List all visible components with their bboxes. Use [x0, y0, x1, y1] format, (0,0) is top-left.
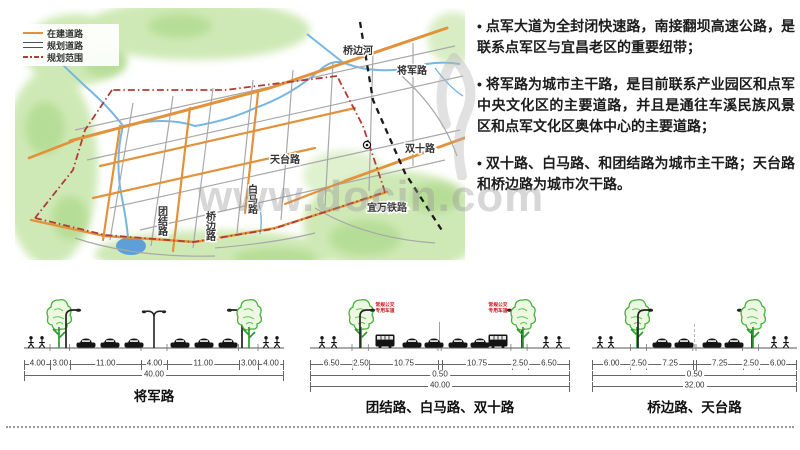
- car-icon: [171, 339, 190, 348]
- cross-section-scene: [24, 296, 284, 358]
- dimension-cell: 6.50: [528, 360, 570, 370]
- map-legend: 在建道路 规划道路 规划范围: [19, 24, 119, 66]
- median-row: 0.50: [592, 371, 797, 381]
- section-title: 桥边路、天台路: [592, 396, 797, 416]
- map-label-jiangjun-road: 将军路: [397, 64, 428, 77]
- bullet-3: • 双十路、白马路、和团结路为城市主干路；天台路和桥边路为城市次干路。: [477, 153, 795, 195]
- median-width: 0.50: [430, 371, 450, 380]
- legend-label: 规划范围: [47, 51, 83, 64]
- cross-section-tuanjie-baima-shuangshi: 常规公交 专用车道 常规公交 专用车道 6.502.5010.7510.752.…: [310, 296, 570, 416]
- pedestrian-icon: [608, 336, 614, 348]
- car-icon: [703, 339, 722, 348]
- map-label-qiaobian-river: 桥边河: [343, 44, 373, 57]
- dimension-cell: 7.25: [646, 360, 692, 370]
- total-width: 32.00: [682, 382, 706, 391]
- dimension-cell: 4.00: [141, 360, 167, 370]
- median-width: 0.50: [685, 371, 705, 380]
- bullet-2: • 将军路为城市主干路，是目前联系产业园区和点军中央文化区的主要道路，并且是通往…: [477, 74, 795, 137]
- pedestrian-icon: [771, 336, 777, 348]
- tree-icon: [741, 300, 765, 348]
- median-row: 0.50: [310, 371, 570, 381]
- car-icon: [425, 339, 444, 348]
- map-label-tiantai-road: 天台路: [270, 153, 301, 166]
- dimension-cell: 11.00: [167, 360, 239, 370]
- section-title: 团结路、白马路、双十路: [310, 396, 570, 416]
- bullet-text-block: • 点军大道为全封闭快速路，南接翻坝高速公路，是联系点军区与宜昌老区的重要纽带；…: [477, 16, 795, 211]
- dimension-cell: 10.75: [369, 360, 439, 370]
- section-title: 将军路: [24, 385, 284, 405]
- total-row: 32.00: [592, 382, 797, 392]
- map-label-baima-road: 白马路: [246, 183, 258, 215]
- pedestrian-icon: [556, 336, 562, 348]
- dimension-cell: 6.00: [759, 360, 797, 370]
- bullet-1: • 点军大道为全封闭快速路，南接翻坝高速公路，是联系点军区与宜昌老区的重要纽带；: [477, 16, 795, 58]
- dimension-cell: 3.00: [50, 360, 70, 370]
- tree-icon: [349, 300, 373, 348]
- dimension-cell: 11.00: [70, 360, 142, 370]
- dimension-cell: 2.50: [630, 360, 646, 370]
- bus-lane-label: 常规公交: [488, 301, 507, 308]
- dimension-cell: 6.00: [592, 360, 630, 370]
- dimension-cell: 2.50: [743, 360, 759, 370]
- pedestrian-icon: [543, 336, 549, 348]
- pedestrian-icon: [263, 336, 269, 348]
- bus-lane-label: 专用车道: [375, 307, 394, 314]
- cross-section-qiaobian-tiantai: 6.002.507.257.252.506.00 0.50 32.00 桥边路、…: [592, 296, 797, 416]
- total-row: 40.00: [310, 382, 570, 392]
- boundary-swatch: [23, 56, 43, 59]
- cross-section-jiangjun: 4.003.0011.004.0011.003.004.00 40.00 将军路: [24, 296, 284, 405]
- car-icon: [195, 339, 214, 348]
- dimension-cell: 6.50: [310, 360, 352, 370]
- tree-icon: [47, 300, 71, 348]
- car-icon: [125, 339, 144, 348]
- pedestrian-icon: [597, 336, 603, 348]
- dimension-cell: 2.50: [352, 360, 368, 370]
- bus-lane-label: 常规公交: [375, 301, 394, 308]
- pedestrian-icon: [783, 336, 789, 348]
- bus-lane-label: 专用车道: [488, 307, 507, 314]
- dimension-cell: 4.00: [24, 360, 50, 370]
- dimension-cell: 2.50: [512, 360, 528, 370]
- pedestrian-icon: [39, 336, 45, 348]
- dimension-row: 6.502.5010.7510.752.506.50: [310, 360, 570, 370]
- slide: 桥边河 将军路 双十路 天台路 宜万铁路 白马路 桥边路 团结路 在建道路 规划…: [0, 0, 800, 450]
- dimension-row: 4.003.0011.004.0011.003.004.00: [24, 360, 284, 370]
- legend-item-construction: 在建道路: [23, 27, 115, 39]
- car-icon: [449, 339, 468, 348]
- construction-road-swatch: [23, 32, 43, 35]
- car-icon: [77, 339, 96, 348]
- legend-item-boundary: 规划范围: [23, 51, 115, 63]
- total-width: 40.00: [142, 371, 166, 380]
- map-label-shuangshi-road: 双十路: [405, 142, 436, 155]
- total-width: 40.00: [428, 382, 452, 391]
- pedestrian-icon: [28, 336, 34, 348]
- footer-dotted-divider: [6, 426, 794, 428]
- car-icon: [725, 339, 744, 348]
- planned-road-swatch: [23, 42, 43, 48]
- car-icon: [101, 339, 120, 348]
- total-row: 40.00: [24, 371, 284, 381]
- dimension-cell: 3.00: [239, 360, 259, 370]
- legend-item-planned: 规划道路: [23, 39, 115, 51]
- car-icon: [403, 339, 422, 348]
- pedestrian-icon: [274, 336, 280, 348]
- car-icon: [675, 339, 694, 348]
- tree-icon: [237, 300, 261, 348]
- planning-map: 桥边河 将军路 双十路 天台路 宜万铁路 白马路 桥边路 团结路 在建道路 规划…: [15, 8, 465, 260]
- pedestrian-icon: [319, 336, 325, 348]
- dimension-cell: 4.00: [258, 360, 284, 370]
- cross-section-scene: 常规公交 专用车道 常规公交 专用车道: [310, 296, 570, 358]
- tree-icon: [511, 300, 535, 348]
- car-icon: [219, 339, 238, 348]
- station-icon: [363, 141, 370, 148]
- bus-icon: [376, 335, 395, 349]
- double-lamp-icon: [142, 310, 166, 348]
- pedestrian-icon: [331, 336, 337, 348]
- map-label-yiwan-railway: 宜万铁路: [367, 201, 408, 214]
- dimension-row: 6.002.507.257.252.506.00: [592, 360, 797, 370]
- dimension-cell: 10.75: [442, 360, 512, 370]
- cross-section-scene: [592, 296, 797, 358]
- dimension-cell: 7.25: [696, 360, 742, 370]
- car-icon: [471, 339, 490, 348]
- map-label-tuanjie-road: 团结路: [156, 206, 168, 237]
- car-icon: [653, 339, 672, 348]
- bus-icon: [489, 335, 508, 349]
